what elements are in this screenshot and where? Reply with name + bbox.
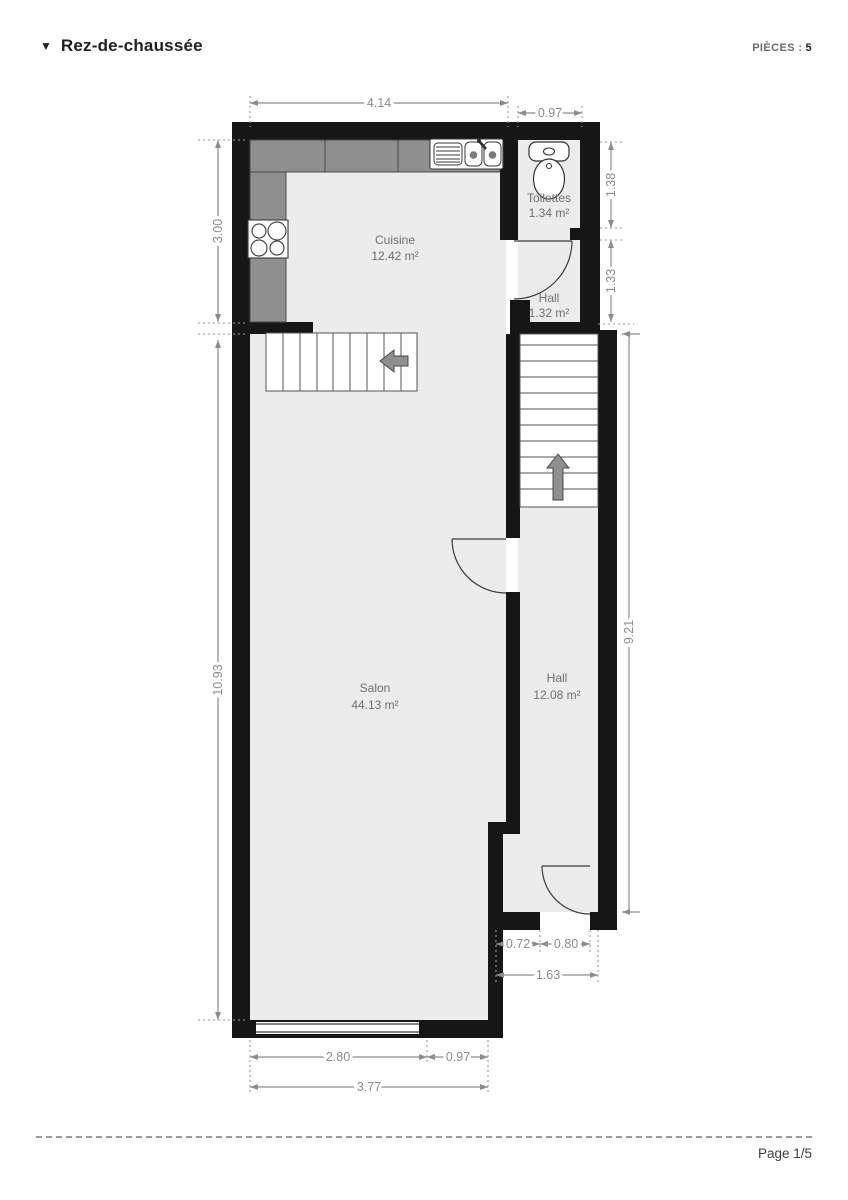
svg-text:12.08 m²: 12.08 m²: [533, 688, 580, 702]
sink-icon: [430, 139, 503, 169]
dimension-top-wc: 0.97: [518, 106, 582, 120]
svg-text:9.21: 9.21: [622, 620, 636, 644]
svg-text:1.63: 1.63: [536, 968, 560, 982]
staircase-horizontal: [266, 333, 417, 391]
svg-text:1.34 m²: 1.34 m²: [529, 206, 570, 220]
dimension-window-width: 2.80: [250, 1050, 427, 1064]
dimension-right-hall: 1.33: [604, 240, 618, 322]
svg-text:Hall: Hall: [539, 291, 560, 305]
dimension-left-kitchen: 3.00: [211, 140, 225, 322]
window: [248, 1022, 427, 1034]
dimension-right-wc: 1.38: [604, 142, 618, 228]
floor-plan-page: ▼ Rez-de-chaussée PIÈCES :5: [0, 0, 848, 1200]
dimension-entry-total: 1.63: [496, 968, 598, 982]
svg-text:4.14: 4.14: [367, 96, 391, 110]
page-number: Page 1/5: [758, 1146, 812, 1161]
svg-text:0.72: 0.72: [506, 937, 530, 951]
svg-text:44.13 m²: 44.13 m²: [351, 698, 398, 712]
staircase-vertical: [520, 334, 598, 507]
dimension-door-width: 0.80: [540, 937, 590, 951]
stove-icon: [248, 220, 288, 258]
svg-text:Hall: Hall: [547, 671, 568, 685]
svg-text:0.97: 0.97: [446, 1050, 470, 1064]
footer-divider: [36, 1136, 812, 1138]
svg-text:Salon: Salon: [360, 681, 391, 695]
svg-text:Cuisine: Cuisine: [375, 233, 415, 247]
svg-text:2.80: 2.80: [326, 1050, 350, 1064]
dimension-right-corridor: 9.21: [622, 334, 640, 912]
floor-plan-canvas: 4.14 0.97 3.00 10.93 1.38 1.33: [0, 0, 848, 1200]
svg-text:0.80: 0.80: [554, 937, 578, 951]
svg-text:1.33: 1.33: [604, 269, 618, 293]
dimension-bottom-total: 3.77: [250, 1080, 488, 1094]
dimension-left-salon: 10.93: [211, 340, 225, 1020]
svg-text:3.00: 3.00: [211, 219, 225, 243]
room-label-toilettes: Toilettes 1.34 m²: [527, 191, 571, 220]
svg-text:1.32 m²: 1.32 m²: [529, 306, 570, 320]
room-fills: [250, 140, 598, 1022]
svg-text:0.97: 0.97: [538, 106, 562, 120]
svg-text:12.42 m²: 12.42 m²: [371, 249, 418, 263]
svg-text:Toilettes: Toilettes: [527, 191, 571, 205]
svg-text:10.93: 10.93: [211, 664, 225, 695]
dimension-bottom-right: 0.97: [427, 1050, 488, 1064]
svg-text:1.38: 1.38: [604, 173, 618, 197]
svg-text:3.77: 3.77: [357, 1080, 381, 1094]
dimension-top-main: 4.14: [250, 96, 508, 110]
